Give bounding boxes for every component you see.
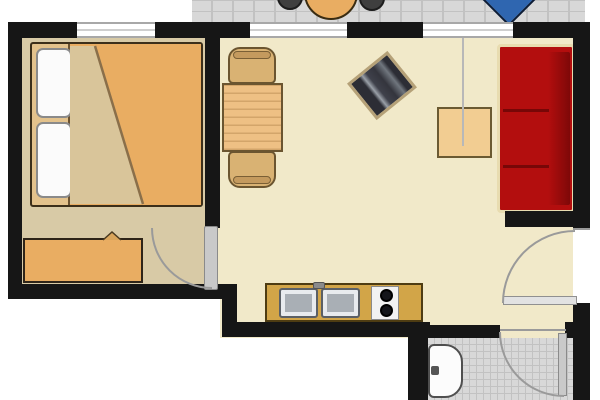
living-room-window <box>250 22 347 38</box>
floor-plan <box>0 0 600 400</box>
entrance-door-leaf <box>503 296 577 305</box>
sofa-cushion-seam <box>503 165 549 168</box>
bedroom-sideboard <box>23 238 143 283</box>
dining-chair <box>228 47 276 84</box>
wall-right-lower <box>573 303 590 400</box>
bedroom-door-leaf <box>204 226 218 290</box>
stove-burner <box>380 304 393 317</box>
kitchen-sink-basin <box>279 288 318 318</box>
living-room-window <box>423 22 513 38</box>
wall-top <box>155 22 250 38</box>
bed-duvet <box>68 44 201 205</box>
double-bed <box>30 42 203 207</box>
balcony-floor-tiles <box>192 0 585 22</box>
wall-kitchen-bottom <box>222 322 430 337</box>
dining-chair <box>228 151 276 188</box>
chair-backrest <box>233 176 271 184</box>
balcony-sun-lounger <box>481 0 538 22</box>
chair-backrest <box>233 51 271 59</box>
wall-left <box>8 22 22 299</box>
bedroom-window <box>77 22 155 38</box>
balcony-chair <box>277 0 303 10</box>
sofa <box>497 44 575 213</box>
bed-pillow <box>36 48 72 118</box>
window-sill-line <box>77 29 155 31</box>
balcony-round-table <box>304 0 358 20</box>
bed-pillow <box>36 122 72 198</box>
window-sill-line <box>250 29 347 31</box>
window-sill-line <box>423 29 513 31</box>
balcony-chair <box>359 0 385 11</box>
wall-right-upper <box>573 22 590 228</box>
dining-table <box>222 83 283 152</box>
toilet-flush-button <box>431 366 439 375</box>
stove-burner <box>380 289 393 302</box>
kitchen-faucet <box>313 282 325 289</box>
wall-top <box>347 22 423 38</box>
wall-bedroom-bottom <box>8 284 237 299</box>
wall-stub-below-sofa <box>505 211 590 227</box>
sofa-cushion-seam <box>503 109 549 112</box>
kitchen-sink-basin <box>321 288 360 318</box>
bathroom-door-leaf <box>558 333 567 396</box>
wall-bathroom-top <box>415 325 500 338</box>
coffee-table <box>437 107 492 158</box>
wall-bedroom-divider <box>205 22 220 228</box>
sofa-backrest <box>548 52 570 205</box>
